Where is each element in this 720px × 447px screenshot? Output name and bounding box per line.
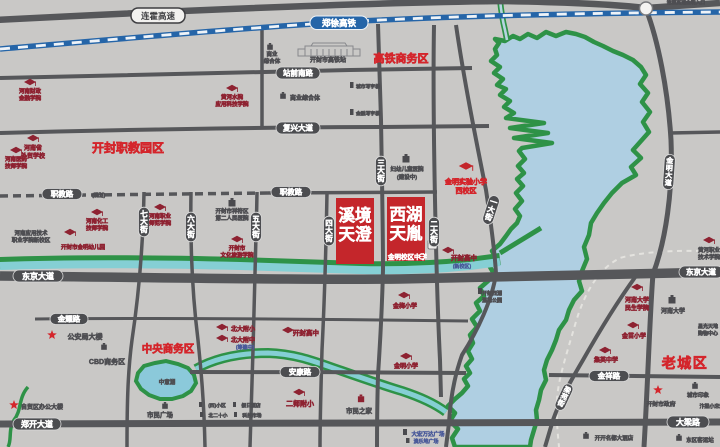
- svg-text:自贸区办公大楼: 自贸区办公大楼: [21, 403, 63, 411]
- svg-text:集英中学: 集英中学: [593, 356, 618, 364]
- svg-text:(新校区): (新校区): [453, 263, 472, 270]
- svg-text:职教路: 职教路: [280, 187, 303, 197]
- svg-text:星光天地: 星光天地: [698, 323, 718, 330]
- svg-text:假日酒店: 假日酒店: [241, 402, 260, 409]
- svg-text:民生学院: 民生学院: [625, 304, 649, 312]
- svg-text:高铁商务区: 高铁商务区: [374, 51, 429, 65]
- svg-text:明: 明: [665, 163, 673, 172]
- svg-text:开封市政府: 开封市政府: [647, 400, 676, 408]
- svg-text:妇幼儿童医院: 妇幼儿童医院: [390, 165, 424, 173]
- svg-text:东京大道: 东京大道: [686, 267, 716, 277]
- svg-text:开开名都大酒店: 开开名都大酒店: [595, 434, 634, 442]
- svg-text:技术学院: 技术学院: [698, 253, 720, 261]
- svg-text:金融写字楼: 金融写字楼: [355, 110, 380, 117]
- svg-text:街: 街: [429, 234, 438, 244]
- svg-text:街: 街: [251, 229, 260, 239]
- svg-text:应用科技学院: 应用科技学院: [215, 100, 249, 108]
- svg-text:二师附小: 二师附小: [286, 399, 314, 408]
- svg-text:黄河职业: 黄河职业: [698, 246, 720, 254]
- svg-text:开封市: 开封市: [229, 244, 246, 252]
- svg-text:东区客运站: 东区客运站: [686, 436, 714, 444]
- svg-text:(四)小区: (四)小区: [208, 402, 226, 409]
- svg-text:(建设中): (建设中): [397, 173, 417, 181]
- svg-text:复兴大道: 复兴大道: [282, 123, 313, 133]
- svg-text:湿地公园: 湿地公园: [482, 297, 502, 304]
- svg-text:商业: 商业: [266, 50, 278, 58]
- svg-text:街: 街: [139, 224, 148, 234]
- svg-text:开封市高铁站: 开封市高铁站: [310, 56, 346, 64]
- svg-text:街: 街: [186, 229, 195, 239]
- svg-text:城市印象: 城市印象: [687, 391, 710, 399]
- svg-text:北大附小: 北大附小: [231, 325, 255, 333]
- svg-text:(规划): (规划): [92, 192, 106, 199]
- svg-text:河南大学: 河南大学: [661, 307, 685, 315]
- svg-text:公安局大楼: 公安局大楼: [68, 332, 103, 341]
- svg-text:站前南路: 站前南路: [283, 68, 313, 78]
- svg-text:职业学院新校区: 职业学院新校区: [12, 236, 51, 244]
- svg-text:综合体: 综合体: [264, 57, 281, 65]
- svg-text:开封市金明幼儿园: 开封市金明幼儿园: [61, 243, 106, 251]
- svg-text:河南财政: 河南财政: [19, 87, 42, 95]
- svg-text:开封高中: 开封高中: [451, 253, 477, 262]
- svg-text:安康路: 安康路: [289, 367, 312, 377]
- svg-text:中央商务区: 中央商务区: [142, 342, 195, 355]
- svg-text:第二人民医院: 第二人民医院: [215, 214, 249, 222]
- svg-text:市民之家: 市民之家: [346, 406, 373, 415]
- svg-text:汴梁小宋城: 汴梁小宋城: [699, 403, 720, 410]
- svg-text:金耀路: 金耀路: [57, 314, 81, 324]
- svg-text:CBD商务区: CBD商务区: [89, 357, 125, 366]
- svg-text:师范学院: 师范学院: [149, 219, 172, 227]
- svg-text:金明小学: 金明小学: [393, 362, 418, 370]
- svg-text:职教路: 职教路: [51, 189, 74, 199]
- svg-text:西校区: 西校区: [456, 186, 477, 195]
- svg-text:开封西湖: 开封西湖: [482, 290, 502, 297]
- svg-text:大: 大: [665, 170, 673, 179]
- svg-text:购物中心: 购物中心: [698, 330, 718, 337]
- svg-text:金苗小学: 金苗小学: [621, 332, 646, 340]
- svg-text:城市写字楼: 城市写字楼: [356, 83, 380, 90]
- svg-text:澳乐地广场: 澳乐地广场: [413, 438, 438, 445]
- svg-text:北大附中: 北大附中: [231, 336, 255, 344]
- svg-text:(筹建中): (筹建中): [236, 344, 255, 351]
- svg-text:河南化工: 河南化工: [86, 217, 109, 225]
- svg-text:大梁路: 大梁路: [676, 417, 701, 427]
- svg-text:文化旅游学院: 文化旅游学院: [220, 251, 254, 259]
- svg-text:街: 街: [324, 233, 333, 243]
- svg-text:河南医药: 河南医药: [5, 155, 28, 163]
- svg-text:金明实验小学: 金明实验小学: [444, 177, 487, 186]
- svg-text:中意湖: 中意湖: [159, 378, 176, 386]
- svg-text:商业综合体: 商业综合体: [290, 94, 321, 102]
- svg-text:技师学院: 技师学院: [86, 224, 109, 232]
- svg-text:河南应用技术: 河南应用技术: [14, 229, 48, 237]
- svg-text:天澄: 天澄: [339, 224, 373, 244]
- svg-text:金融学院: 金融学院: [18, 94, 42, 102]
- svg-text:天胤: 天胤: [390, 223, 424, 243]
- svg-text:北二十小: 北二十小: [208, 412, 227, 419]
- svg-text:西湖: 西湖: [390, 205, 423, 224]
- svg-text:河南大学: 河南大学: [625, 296, 649, 304]
- svg-text:金梅小学: 金梅小学: [392, 302, 417, 310]
- svg-text:河南职业: 河南职业: [149, 212, 172, 220]
- svg-text:技师学院: 技师学院: [5, 162, 28, 170]
- svg-text:开封市祥符区: 开封市祥符区: [215, 207, 249, 215]
- svg-text:溪境: 溪境: [339, 205, 373, 225]
- svg-text:黄河水院: 黄河水院: [221, 93, 244, 101]
- svg-text:科技市场: 科技市场: [242, 412, 261, 419]
- svg-text:开封高中: 开封高中: [293, 328, 319, 337]
- svg-text:郑徐高铁: 郑徐高铁: [322, 18, 357, 28]
- svg-text:老城区: 老城区: [662, 355, 709, 371]
- svg-text:连霍高速金明入口: 连霍高速金明入口: [667, 0, 706, 6]
- svg-text:金祥路: 金祥路: [597, 371, 621, 381]
- svg-text:河南省: 河南省: [24, 144, 42, 152]
- svg-text:连霍高速: 连霍高速: [141, 11, 176, 21]
- svg-text:市民广场: 市民广场: [147, 410, 174, 419]
- svg-text:郑开大道: 郑开大道: [21, 419, 53, 429]
- svg-text:东京大道: 东京大道: [22, 271, 54, 281]
- svg-text:街: 街: [376, 173, 385, 183]
- svg-text:开封职教园区: 开封职教园区: [92, 140, 164, 155]
- svg-text:大宏万达广场: 大宏万达广场: [411, 430, 445, 438]
